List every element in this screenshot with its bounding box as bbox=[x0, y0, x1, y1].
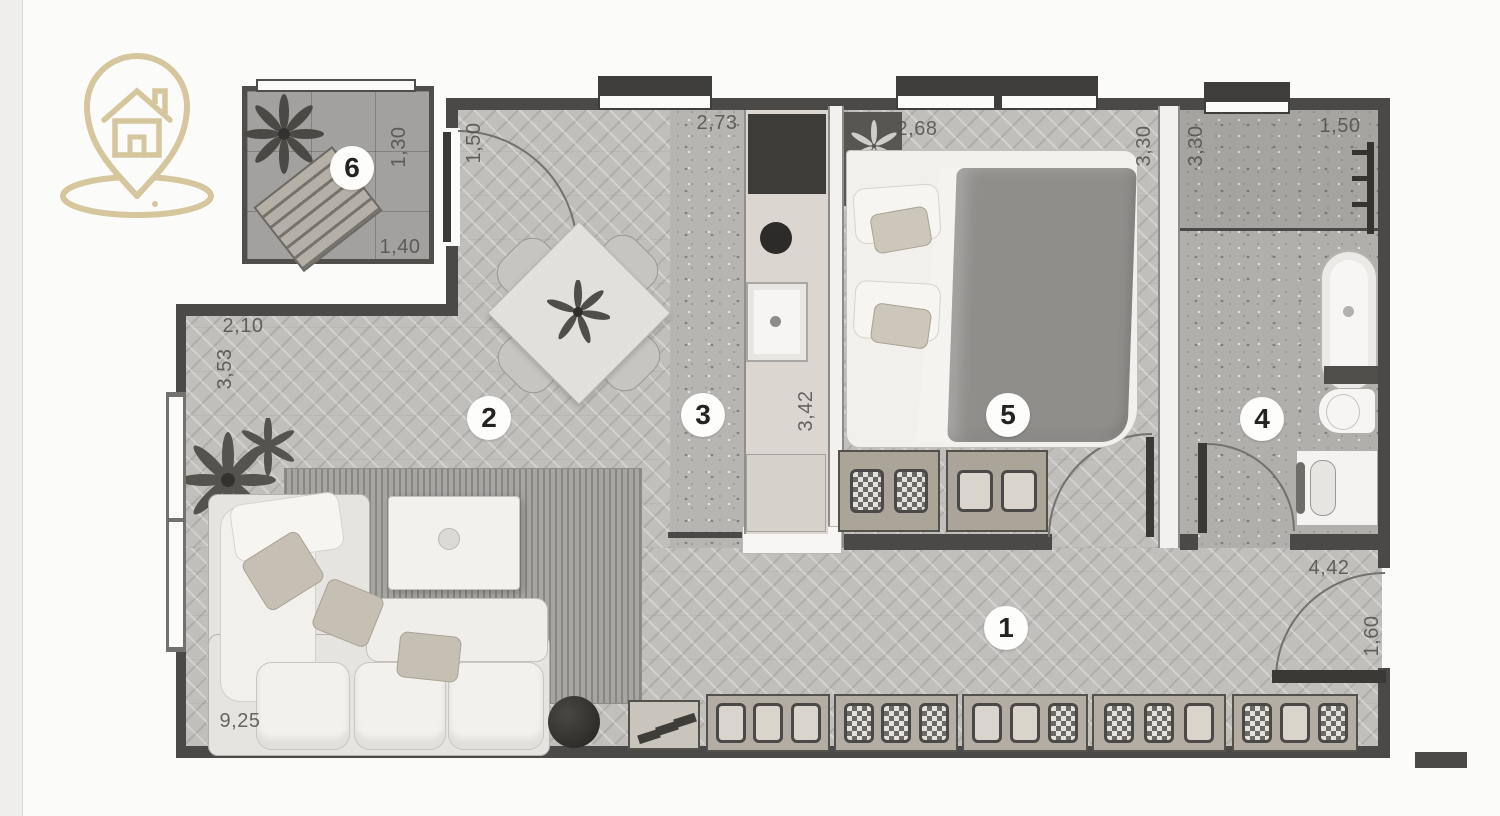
room-marker-3: 3 bbox=[681, 393, 725, 437]
bed-pillow-small bbox=[869, 302, 932, 350]
page-edge-strip bbox=[0, 0, 23, 816]
dimension-bedroom-width: 2,68 bbox=[890, 117, 944, 141]
radiator-tick bbox=[1352, 150, 1368, 155]
sofa-seat-cushion bbox=[256, 662, 350, 750]
storage-box bbox=[1010, 703, 1040, 743]
wall-kitchen-bottom-line bbox=[668, 532, 744, 538]
dimension-living-side: 3,53 bbox=[213, 342, 237, 396]
shoes-icon bbox=[673, 713, 697, 728]
coffee-table-dish bbox=[438, 528, 460, 550]
storage-basket bbox=[1144, 703, 1174, 743]
window-bedroom-icon bbox=[896, 76, 1098, 96]
wall-right-upper bbox=[1378, 98, 1390, 568]
storage-basket bbox=[844, 703, 874, 743]
wall-stub-bottom-right bbox=[1415, 752, 1467, 768]
radiator-tick bbox=[1352, 202, 1368, 207]
room-marker-5: 5 bbox=[986, 393, 1030, 437]
dimension-balcony-width: 1,40 bbox=[373, 235, 427, 259]
storage-box bbox=[972, 703, 1002, 743]
floorplan-page: 1 2 3 4 5 6 1,50 2,73 2,68 3,30 3,30 1,5… bbox=[0, 0, 1500, 816]
storage-basket bbox=[850, 469, 884, 513]
storage-basket bbox=[1104, 703, 1134, 743]
dimension-entrance-width: 1,60 bbox=[1360, 609, 1384, 663]
window-living-icon bbox=[598, 76, 712, 96]
sofa-seat-cushion bbox=[448, 662, 544, 750]
storage-box bbox=[791, 703, 821, 743]
bedroom-door-leaf bbox=[1146, 437, 1154, 537]
house-location-pin-icon bbox=[52, 46, 222, 224]
bathroom-door-leaf bbox=[1198, 443, 1207, 533]
window-bathroom-icon bbox=[1204, 82, 1290, 102]
radiator-tick bbox=[1352, 176, 1368, 181]
dimension-kitchen-width: 2,73 bbox=[690, 111, 744, 135]
storage-basket bbox=[1048, 703, 1078, 743]
storage-basket bbox=[1242, 703, 1272, 743]
wall-bedroom-bottom bbox=[844, 534, 1052, 550]
room-marker-2: 2 bbox=[467, 396, 511, 440]
window-left-pane bbox=[169, 397, 183, 647]
window-bathroom-pane bbox=[1204, 100, 1290, 114]
hall-cabinet bbox=[706, 694, 830, 752]
towel-radiator bbox=[1367, 142, 1374, 234]
vanity-edge bbox=[1296, 462, 1305, 514]
storage-box bbox=[957, 470, 993, 512]
room-marker-4: 4 bbox=[1240, 397, 1284, 441]
bathroom-vanity bbox=[1296, 450, 1378, 526]
bathtub-drain bbox=[1343, 306, 1354, 317]
storage-basket bbox=[1318, 703, 1348, 743]
bed-duvet bbox=[947, 168, 1137, 442]
dimension-total-length: 9,25 bbox=[213, 709, 267, 733]
storage-box bbox=[1001, 470, 1037, 512]
bathroom-shelf bbox=[1324, 366, 1378, 384]
window-living-pane bbox=[598, 94, 712, 110]
bedroom-dresser bbox=[946, 450, 1048, 532]
balcony-door-leaf bbox=[443, 132, 451, 242]
room-marker-1: 1 bbox=[984, 606, 1028, 650]
storage-basket bbox=[919, 703, 949, 743]
storage-box bbox=[753, 703, 783, 743]
wall-bathroom-jamb bbox=[1180, 534, 1198, 550]
hall-cabinet bbox=[834, 694, 958, 752]
bedroom-dresser bbox=[838, 450, 940, 532]
shower-divider bbox=[1180, 228, 1378, 231]
storage-box bbox=[1184, 703, 1214, 743]
shoe-cabinet bbox=[628, 700, 700, 750]
room-marker-6: 6 bbox=[330, 146, 374, 190]
vanity-sink bbox=[1310, 460, 1336, 516]
hall-cabinet bbox=[962, 694, 1088, 752]
dimension-bathroom-width: 1,50 bbox=[1313, 114, 1367, 138]
dimension-bedroom-depth: 3,30 bbox=[1132, 119, 1156, 173]
storage-box bbox=[716, 703, 746, 743]
table-plant-icon bbox=[546, 280, 610, 344]
dimension-kitchen-depth: 3,42 bbox=[794, 384, 818, 438]
storage-box bbox=[1280, 703, 1310, 743]
sofa-pillow-tan bbox=[396, 631, 462, 683]
window-bedroom-mullion bbox=[994, 94, 1002, 110]
kitchen-sink-round bbox=[760, 222, 792, 254]
window-left-mullion bbox=[169, 518, 183, 522]
kitchen-cooktop bbox=[748, 114, 826, 194]
dimension-living-ledge: 2,10 bbox=[216, 314, 270, 338]
storage-basket bbox=[894, 469, 928, 513]
dimension-bathroom-depth: 3,30 bbox=[1184, 119, 1208, 173]
balcony-railing bbox=[256, 79, 416, 92]
kitchen-basin-drain bbox=[770, 316, 781, 327]
dimension-living-width: 1,50 bbox=[462, 116, 486, 170]
wall-bedroom-bathroom bbox=[1158, 106, 1180, 548]
kitchen-appliance bbox=[746, 454, 826, 532]
toilet-bowl bbox=[1326, 394, 1360, 430]
wall-bathroom-bottom bbox=[1290, 534, 1380, 550]
dimension-hall-length: 4,42 bbox=[1302, 556, 1356, 580]
entrance-door-leaf bbox=[1272, 670, 1386, 683]
hall-cabinet bbox=[1092, 694, 1226, 752]
pouf bbox=[548, 696, 600, 748]
dimension-balcony-depth: 1,30 bbox=[387, 120, 411, 174]
hall-cabinet bbox=[1232, 694, 1358, 752]
storage-basket bbox=[881, 703, 911, 743]
